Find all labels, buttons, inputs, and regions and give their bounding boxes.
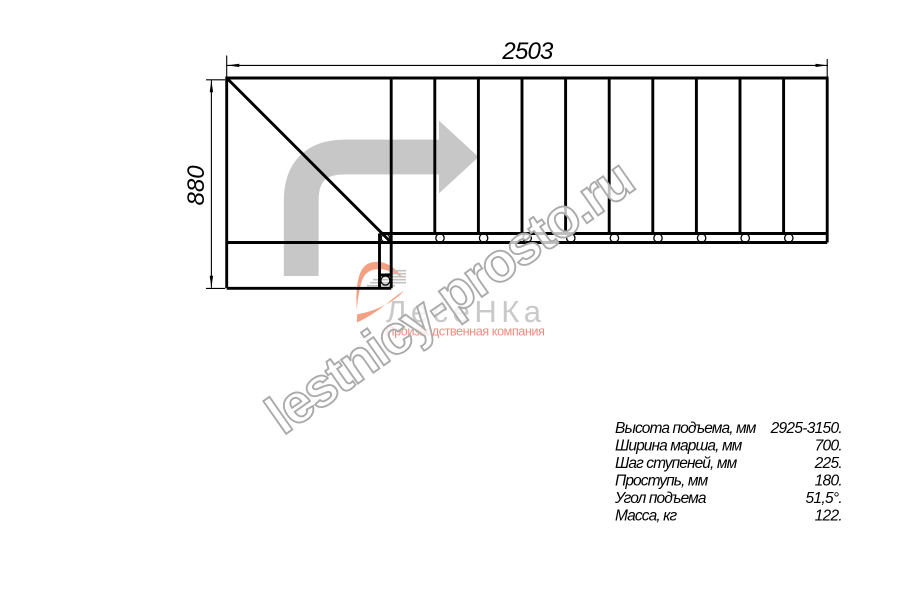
svg-text:700.: 700.	[815, 437, 842, 454]
svg-text:Высота подъема, мм: Высота подъема, мм	[615, 420, 757, 437]
svg-text:51,5°.: 51,5°.	[806, 490, 842, 507]
svg-text:Масса, кг: Масса, кг	[615, 507, 678, 524]
svg-text:Угол подъема: Угол подъема	[614, 490, 707, 507]
svg-text:122.: 122.	[815, 507, 842, 524]
svg-text:Проступь, мм: Проступь, мм	[615, 472, 709, 489]
svg-text:225.: 225.	[814, 455, 842, 472]
svg-text:2925-3150.: 2925-3150.	[770, 420, 842, 437]
svg-text:180.: 180.	[815, 472, 842, 489]
svg-text:880: 880	[183, 165, 210, 206]
svg-text:Шаг ступеней, мм: Шаг ступеней, мм	[615, 455, 738, 472]
svg-text:Ширина марша, мм: Ширина марша, мм	[615, 437, 743, 454]
svg-text:2503: 2503	[501, 38, 554, 65]
